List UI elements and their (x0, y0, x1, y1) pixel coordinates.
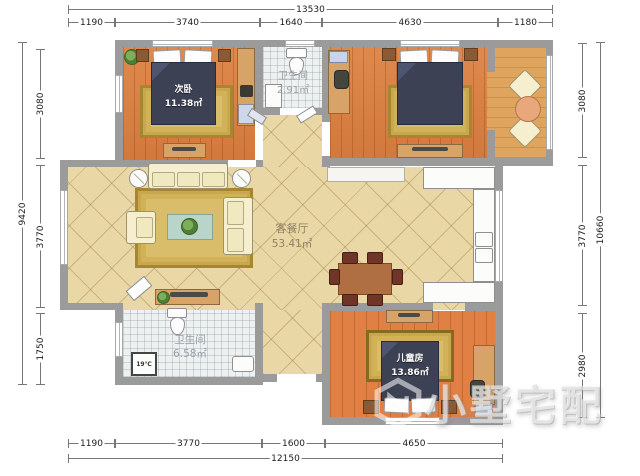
dim-top-seg2: 3740 (115, 18, 260, 27)
kitchen-counter-bottom (423, 282, 495, 303)
dining-chair (342, 252, 358, 264)
dim-bottom-total: 12150 (68, 454, 503, 463)
printer-master (329, 51, 348, 63)
nightstand-master-left (382, 48, 396, 61)
wall-corridor-left (255, 303, 263, 382)
bath-top-name: 卫生间 (264, 70, 322, 84)
window-master-top (400, 40, 460, 47)
window-bay-right (546, 55, 553, 150)
dim-left-total: 9420 (18, 42, 27, 385)
wall-bath-top-left (255, 40, 263, 115)
wall-bedroom2-south-b (256, 160, 263, 167)
pillow (384, 397, 410, 413)
wall-bay-stub-bottom (487, 130, 495, 166)
tv-kids (398, 313, 420, 317)
water-heater-label: 19℃ (133, 361, 155, 368)
wall-entry-stub-left (255, 374, 277, 382)
dim-top-total: 13530 (68, 5, 553, 14)
dim-bottom-seg4: 4650 (325, 439, 503, 448)
sofa-cushion (136, 217, 153, 238)
wall-kids-left (322, 303, 330, 425)
side-table-right (232, 169, 251, 188)
chair-kids-desk (470, 380, 485, 398)
sofa-cushion (152, 172, 175, 187)
bath-bottom-name: 卫生间 (155, 333, 225, 347)
wall-bath-bottom-south (115, 377, 263, 385)
dim-bottom-seg2: 3770 (115, 439, 262, 448)
bedroom2-name: 次卧 (151, 84, 216, 98)
bed-bedroom2: 次卧 11.38㎡ (151, 48, 216, 125)
window-bedroom2-top (152, 40, 213, 47)
floor-entry-corridor (263, 310, 322, 374)
wall-protrusion-bottom (60, 303, 123, 310)
dim-bottom-seg1: 1190 (68, 439, 115, 448)
floor-hall-master (263, 115, 322, 167)
floor-plan-canvas: 次卧 11.38㎡ 卫生间 2.91㎡ (0, 0, 640, 476)
bed-kids: 儿童房 13.86㎡ (381, 341, 439, 416)
plant-tv-cabinet (157, 291, 170, 304)
tv-master (412, 147, 448, 151)
nightstand-bedroom2-right (218, 49, 231, 62)
bedroom2-area: 11.38㎡ (151, 98, 216, 112)
window-living-left (60, 190, 68, 265)
wall-protrusion-top (60, 160, 123, 167)
window-bath-top (285, 40, 315, 47)
bath-top-area: 2.91㎡ (264, 84, 322, 98)
kids-name: 儿童房 (381, 353, 439, 367)
pillow (411, 397, 437, 413)
dining-chair (367, 252, 383, 264)
kitchen-sink-basin1 (475, 232, 493, 247)
armchair-living (126, 211, 156, 244)
dining-table (338, 263, 392, 295)
bath-top-label: 卫生间 2.91㎡ (264, 70, 322, 97)
wall-kids-right (495, 303, 503, 425)
kids-label: 儿童房 13.86㎡ (381, 353, 439, 380)
sofa-cushion (227, 228, 244, 252)
dining-chair (392, 269, 403, 285)
window-bedroom2-left (115, 75, 123, 113)
window-kitchen-right (495, 190, 503, 282)
window-bath-bottom-left (115, 322, 123, 357)
bed-master (397, 47, 463, 125)
window-kids-south (385, 417, 440, 425)
wardrobe-item (240, 85, 253, 97)
nightstand-bedroom2-left (136, 49, 149, 62)
dim-left-seg1: 3080 (36, 49, 45, 159)
bath-bottom-area: 6.58㎡ (155, 347, 225, 361)
sofa-two-seat (223, 197, 253, 255)
kitchen-sink-basin2 (475, 248, 493, 263)
nightstand-kids-left (363, 400, 379, 414)
sideboard-cabinet (327, 167, 405, 182)
dim-left-seg3: 1750 (36, 313, 45, 385)
blanket (397, 62, 463, 125)
sofa-cushion (227, 201, 244, 225)
bedroom2-label: 次卧 11.38㎡ (151, 84, 216, 111)
nightstand-master-right (464, 48, 478, 61)
dim-right-seg1: 3080 (578, 43, 587, 158)
sofa-cushion (202, 172, 225, 187)
dining-chair (342, 294, 358, 306)
dim-top-seg3: 1640 (260, 18, 322, 27)
dim-top-seg4: 4630 (322, 18, 498, 27)
tv-bedroom2 (172, 147, 196, 151)
kids-area: 13.86㎡ (381, 367, 439, 381)
living-label: 客餐厅 53.41㎡ (252, 222, 332, 251)
dim-right-seg2: 3770 (578, 165, 587, 306)
table-bay-round (515, 96, 541, 122)
dim-right-total: 10660 (596, 42, 605, 418)
water-heater: 19℃ (131, 352, 157, 376)
sofa-cushion (177, 172, 200, 187)
dining-chair (367, 294, 383, 306)
sofa-three-seat (148, 163, 228, 189)
bath-bottom-label: 卫生间 6.58㎡ (155, 333, 225, 361)
living-area: 53.41㎡ (252, 237, 332, 251)
plant-coffee-table (181, 218, 198, 235)
dim-right-seg3: 2980 (578, 313, 587, 418)
wall-bay-stub-top (487, 47, 495, 72)
dining-chair (329, 269, 340, 285)
tv-living (170, 292, 208, 297)
dim-top-seg1: 1190 (68, 18, 115, 27)
nightstand-kids-right (441, 400, 457, 414)
wall-master-south (322, 158, 553, 166)
living-name: 客餐厅 (252, 222, 332, 237)
kitchen-counter-top (423, 167, 495, 189)
dim-left-seg2: 3770 (36, 165, 45, 308)
side-table-left (129, 169, 148, 188)
dim-top-seg5: 1180 (498, 18, 553, 27)
shower-tray (232, 356, 254, 372)
chair-master-desk (334, 70, 349, 89)
dim-bottom-seg3: 1600 (262, 439, 325, 448)
printer-kids (475, 403, 493, 416)
